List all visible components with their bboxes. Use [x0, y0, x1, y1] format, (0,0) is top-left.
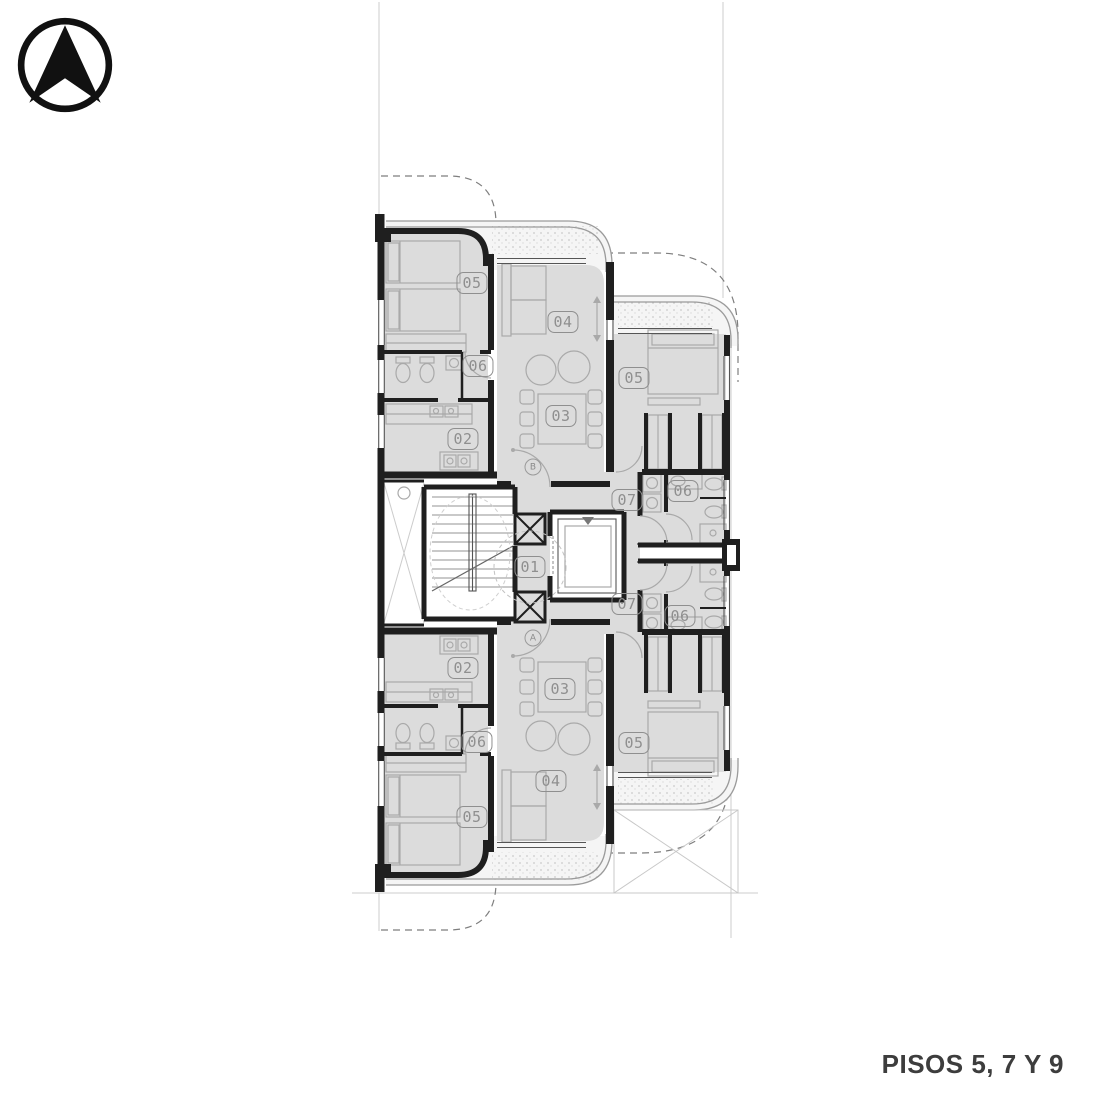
floor-plan-drawing: [0, 0, 1100, 1100]
plan-caption: PISOS 5, 7 Y 9: [882, 1049, 1064, 1080]
floor-plan-page: 0105040603020507060706050203060405BA PIS…: [0, 0, 1100, 1100]
terrace-hatch: [614, 810, 738, 893]
